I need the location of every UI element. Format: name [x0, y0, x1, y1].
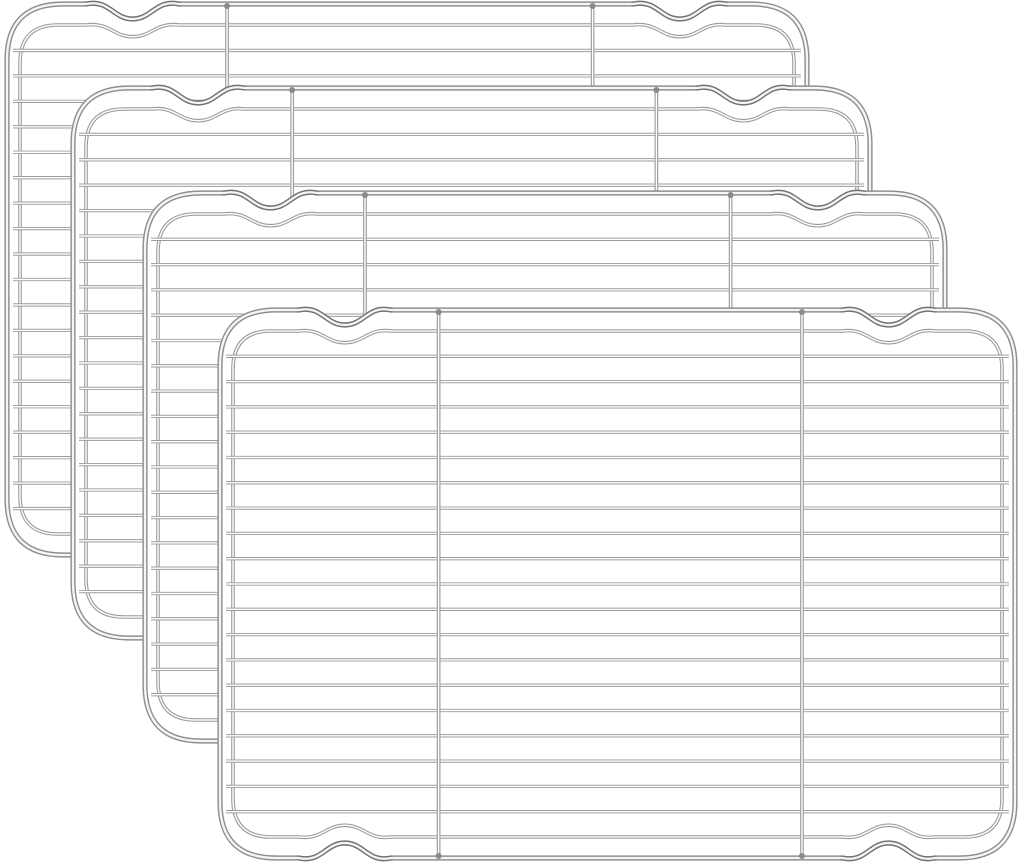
racks-svg [0, 0, 1024, 862]
weld-joint [436, 309, 442, 315]
product-photo [0, 0, 1024, 862]
weld-joint [289, 87, 295, 93]
weld-joint [653, 87, 659, 93]
weld-joint [362, 192, 368, 198]
weld-joint [436, 853, 442, 859]
weld-joint [728, 192, 734, 198]
weld-joint [799, 853, 805, 859]
weld-joint [799, 309, 805, 315]
weld-joint [224, 3, 230, 9]
rack-4 [220, 309, 1015, 859]
weld-joint [590, 3, 596, 9]
